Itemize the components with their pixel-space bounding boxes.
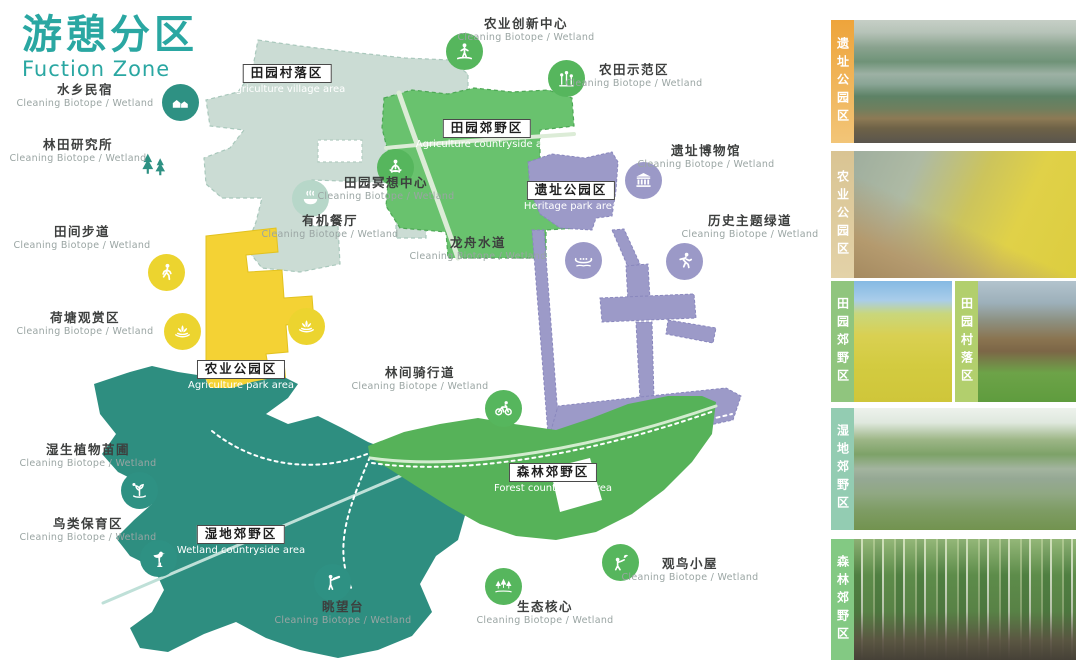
photo-card-label: 遗址公园区 — [837, 37, 849, 127]
zone-label-countryside: 田园郊野区Agriculture countryside area — [416, 117, 558, 151]
zone-name: 森林郊野区 — [509, 463, 598, 482]
photo-card-heritage-aerial: 遗址公园区 — [831, 20, 1076, 143]
photo-card-boardwalk-rapeseed: 农业公园区 — [831, 151, 1076, 278]
tianjian-budao-marker — [148, 254, 185, 291]
poi-name: 林间骑行道 — [320, 366, 520, 381]
poi-name: 遗址博物馆 — [606, 144, 806, 159]
nongye-chuangxin-label: 农业创新中心Cleaning Biotope / Wetland — [426, 17, 626, 43]
poi-name: 荷塘观赏区 — [0, 311, 185, 326]
lotus-icon — [295, 315, 318, 338]
lintian-yanjiusuo-label: 林田研究所Cleaning Biotope / Wetland — [0, 138, 178, 164]
poi-subtitle: Cleaning Biotope / Wetland — [243, 615, 443, 626]
nongtian-shifanqu-label: 农田示范区Cleaning Biotope / Wetland — [534, 63, 734, 89]
photo-card-forest-path: 森林郊野区 — [831, 539, 1076, 660]
photo-card-label-strip: 农业公园区 — [831, 151, 854, 278]
shengtai-hexin-label: 生态核心Cleaning Biotope / Wetland — [445, 600, 645, 626]
hetang-guanshangqu-label: 荷塘观赏区Cleaning Biotope / Wetland — [0, 311, 185, 337]
sidebar-row: 农业公园区 — [831, 151, 1076, 278]
field-path-photo — [854, 281, 952, 402]
poi-name: 农田示范区 — [534, 63, 734, 78]
poi-name: 田园冥想中心 — [286, 176, 486, 191]
photo-card-label-strip: 湿地郊野区 — [831, 408, 854, 530]
poi-name: 林田研究所 — [0, 138, 178, 153]
photo-card-label: 田园村落区 — [961, 297, 973, 387]
photo-card-field-path: 田园郊野区 — [831, 281, 952, 402]
linjian-qixingdao-marker — [485, 390, 522, 427]
poi-name: 生态核心 — [445, 600, 645, 615]
photo-card-label: 森林郊野区 — [837, 555, 849, 645]
sidebar-row: 湿地郊野区 — [831, 408, 1076, 530]
zone-label-agripark: 农业公园区Agriculture park area — [188, 358, 294, 392]
poi-subtitle: Cleaning Biotope / Wetland — [650, 229, 850, 240]
zone-name: 遗址公园区 — [527, 181, 616, 200]
heritage-block — [600, 294, 696, 322]
niaolei-baoyuqu-marker — [140, 540, 177, 577]
walker-icon — [155, 261, 178, 284]
zone-name-en: Wetland countryside area — [177, 545, 305, 558]
forest-path-photo — [854, 539, 1076, 660]
heritage-block — [636, 322, 654, 400]
zone-name: 湿地郊野区 — [197, 525, 286, 544]
poi-subtitle: Cleaning Biotope / Wetland — [0, 153, 178, 164]
function-zone-plan: 游憩分区 Fuction Zone 水乡民宿Cleaning Biotope /… — [0, 0, 1080, 665]
poi-subtitle: Cleaning Biotope / Wetland — [230, 229, 430, 240]
page-title: 游憩分区 — [22, 14, 198, 56]
lishi-zhuti-ludao-marker — [666, 243, 703, 280]
poi-subtitle: Cleaning Biotope / Wetland — [320, 381, 520, 392]
poi-name: 水乡民宿 — [0, 83, 185, 98]
zone-name: 田园郊野区 — [443, 119, 532, 138]
zone-name-en: Agriculture park area — [188, 380, 294, 393]
tianjian-budao-label: 田间步道Cleaning Biotope / Wetland — [0, 225, 182, 251]
zone-label-heritage: 遗址公园区Heritage park area — [524, 179, 618, 213]
zone-label-village: 田园村落区Agriculture village area — [229, 62, 346, 96]
poi-name: 鸟类保育区 — [0, 517, 188, 532]
youji-canting-label: 有机餐厅Cleaning Biotope / Wetland — [230, 214, 430, 240]
guanniao-xiaowu-label: 观鸟小屋Cleaning Biotope / Wetland — [590, 557, 790, 583]
zone-name-en: Heritage park area — [524, 201, 618, 214]
page-subtitle: Fuction Zone — [22, 57, 198, 81]
poi-subtitle: Cleaning Biotope / Wetland — [286, 191, 486, 202]
photo-card-label-strip: 森林郊野区 — [831, 539, 854, 660]
photo-card-label: 湿地郊野区 — [837, 424, 849, 514]
sidebar-row: 遗址公园区 — [831, 20, 1076, 143]
zone-name: 田园村落区 — [243, 64, 332, 83]
linjian-qixingdao-label: 林间骑行道Cleaning Biotope / Wetland — [320, 366, 520, 392]
poi-name: 观鸟小屋 — [590, 557, 790, 572]
poi-subtitle: Cleaning Biotope / Wetland — [0, 326, 185, 337]
niaolei-baoyuqu-label: 鸟类保育区Cleaning Biotope / Wetland — [0, 517, 188, 543]
sidebar-row: 田园郊野区田园村落区 — [831, 281, 1076, 402]
poi-name: 历史主题绿道 — [650, 214, 850, 229]
heritage-edge-east — [612, 229, 640, 267]
pines-icon — [492, 575, 515, 598]
poi-name: 农业创新中心 — [426, 17, 626, 32]
hetang-map-marker-marker — [288, 308, 325, 345]
boardwalk-rapeseed-photo — [854, 151, 1076, 278]
shuixiang-minsu-label: 水乡民宿Cleaning Biotope / Wetland — [0, 83, 185, 109]
page-title-block: 游憩分区 Fuction Zone — [22, 14, 198, 81]
zone-name-en: Agriculture countryside area — [416, 139, 558, 152]
poi-name: 有机餐厅 — [230, 214, 430, 229]
poi-subtitle: Cleaning Biotope / Wetland — [0, 240, 182, 251]
zone-name: 农业公园区 — [197, 360, 286, 379]
plot-outline — [318, 140, 362, 162]
museum-icon — [632, 169, 655, 192]
shengtai-hexin-marker — [485, 568, 522, 605]
photo-card-label-strip: 遗址公园区 — [831, 20, 854, 143]
heron-icon — [147, 547, 170, 570]
poi-subtitle: Cleaning Biotope / Wetland — [378, 251, 578, 262]
photo-card-wetland-lake: 湿地郊野区 — [831, 408, 1076, 530]
poi-subtitle: Cleaning Biotope / Wetland — [445, 615, 645, 626]
tiaowangtai-marker — [314, 564, 351, 601]
heritage-block — [666, 320, 716, 343]
runner-icon — [673, 250, 696, 273]
poi-name: 眺望台 — [243, 600, 443, 615]
poi-subtitle: Cleaning Biotope / Wetland — [0, 98, 185, 109]
bike-icon — [492, 397, 515, 420]
photo-card-label: 农业公园区 — [837, 170, 849, 260]
plant-icon — [128, 479, 151, 502]
zone-name-en: Forest countryside area — [494, 483, 612, 496]
village-houses-photo — [978, 281, 1076, 402]
poi-name: 田间步道 — [0, 225, 182, 240]
poi-subtitle: Cleaning Biotope / Wetland — [590, 572, 790, 583]
tiaowangtai-label: 眺望台Cleaning Biotope / Wetland — [243, 600, 443, 626]
photo-card-village-houses: 田园村落区 — [955, 281, 1076, 402]
poi-subtitle: Cleaning Biotope / Wetland — [426, 32, 626, 43]
poi-subtitle: Cleaning Biotope / Wetland — [0, 458, 188, 469]
lishi-zhuti-ludao-label: 历史主题绿道Cleaning Biotope / Wetland — [650, 214, 850, 240]
mingxiang-zhongxin-label: 田园冥想中心Cleaning Biotope / Wetland — [286, 176, 486, 202]
poi-name: 湿生植物苗圃 — [0, 443, 188, 458]
zone-label-wetland: 湿地郊野区Wetland countryside area — [177, 523, 305, 557]
photo-card-label-strip: 田园村落区 — [955, 281, 978, 402]
heritage-aerial-photo — [854, 20, 1076, 143]
zone-label-forest: 森林郊野区Forest countryside area — [494, 461, 612, 495]
poi-subtitle: Cleaning Biotope / Wetland — [606, 159, 806, 170]
shisheng-miaopu-marker — [121, 472, 158, 509]
sidebar-row: 森林郊野区 — [831, 539, 1076, 660]
photo-card-label: 田园郊野区 — [837, 297, 849, 387]
shisheng-miaopu-label: 湿生植物苗圃Cleaning Biotope / Wetland — [0, 443, 188, 469]
yizhi-bowuguan-label: 遗址博物馆Cleaning Biotope / Wetland — [606, 144, 806, 170]
zone-name-en: Agriculture village area — [229, 84, 346, 97]
wetland-lake-photo — [854, 408, 1076, 530]
poi-subtitle: Cleaning Biotope / Wetland — [0, 532, 188, 543]
photo-card-label-strip: 田园郊野区 — [831, 281, 854, 402]
scope-icon — [321, 571, 344, 594]
poi-subtitle: Cleaning Biotope / Wetland — [534, 78, 734, 89]
